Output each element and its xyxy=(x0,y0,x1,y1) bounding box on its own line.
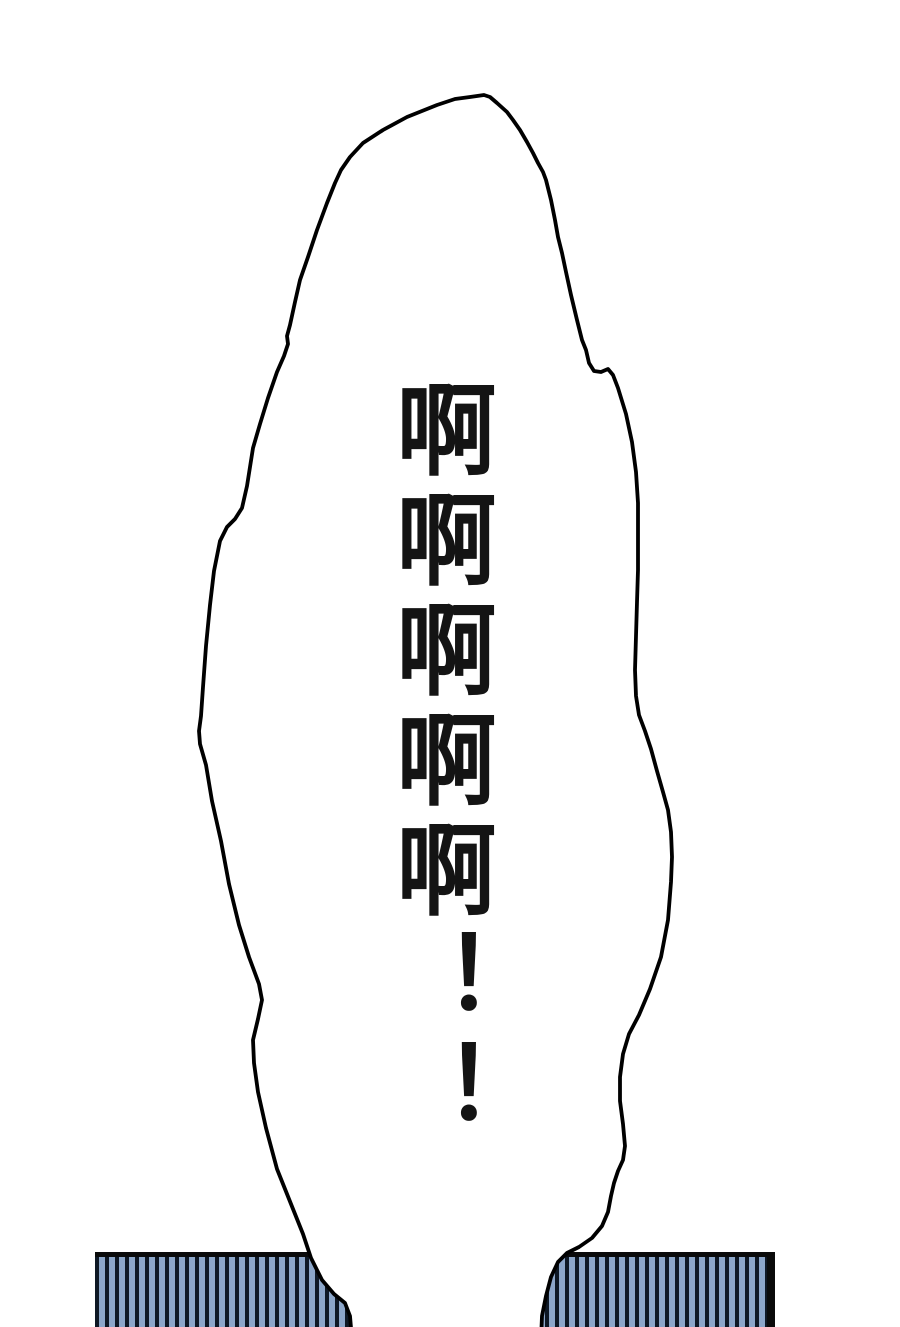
speech-text: 啊啊啊啊啊！！ xyxy=(387,378,487,1148)
wall-right-edge-border xyxy=(767,1252,775,1327)
manga-panel: 啊啊啊啊啊！！ xyxy=(0,0,900,1327)
